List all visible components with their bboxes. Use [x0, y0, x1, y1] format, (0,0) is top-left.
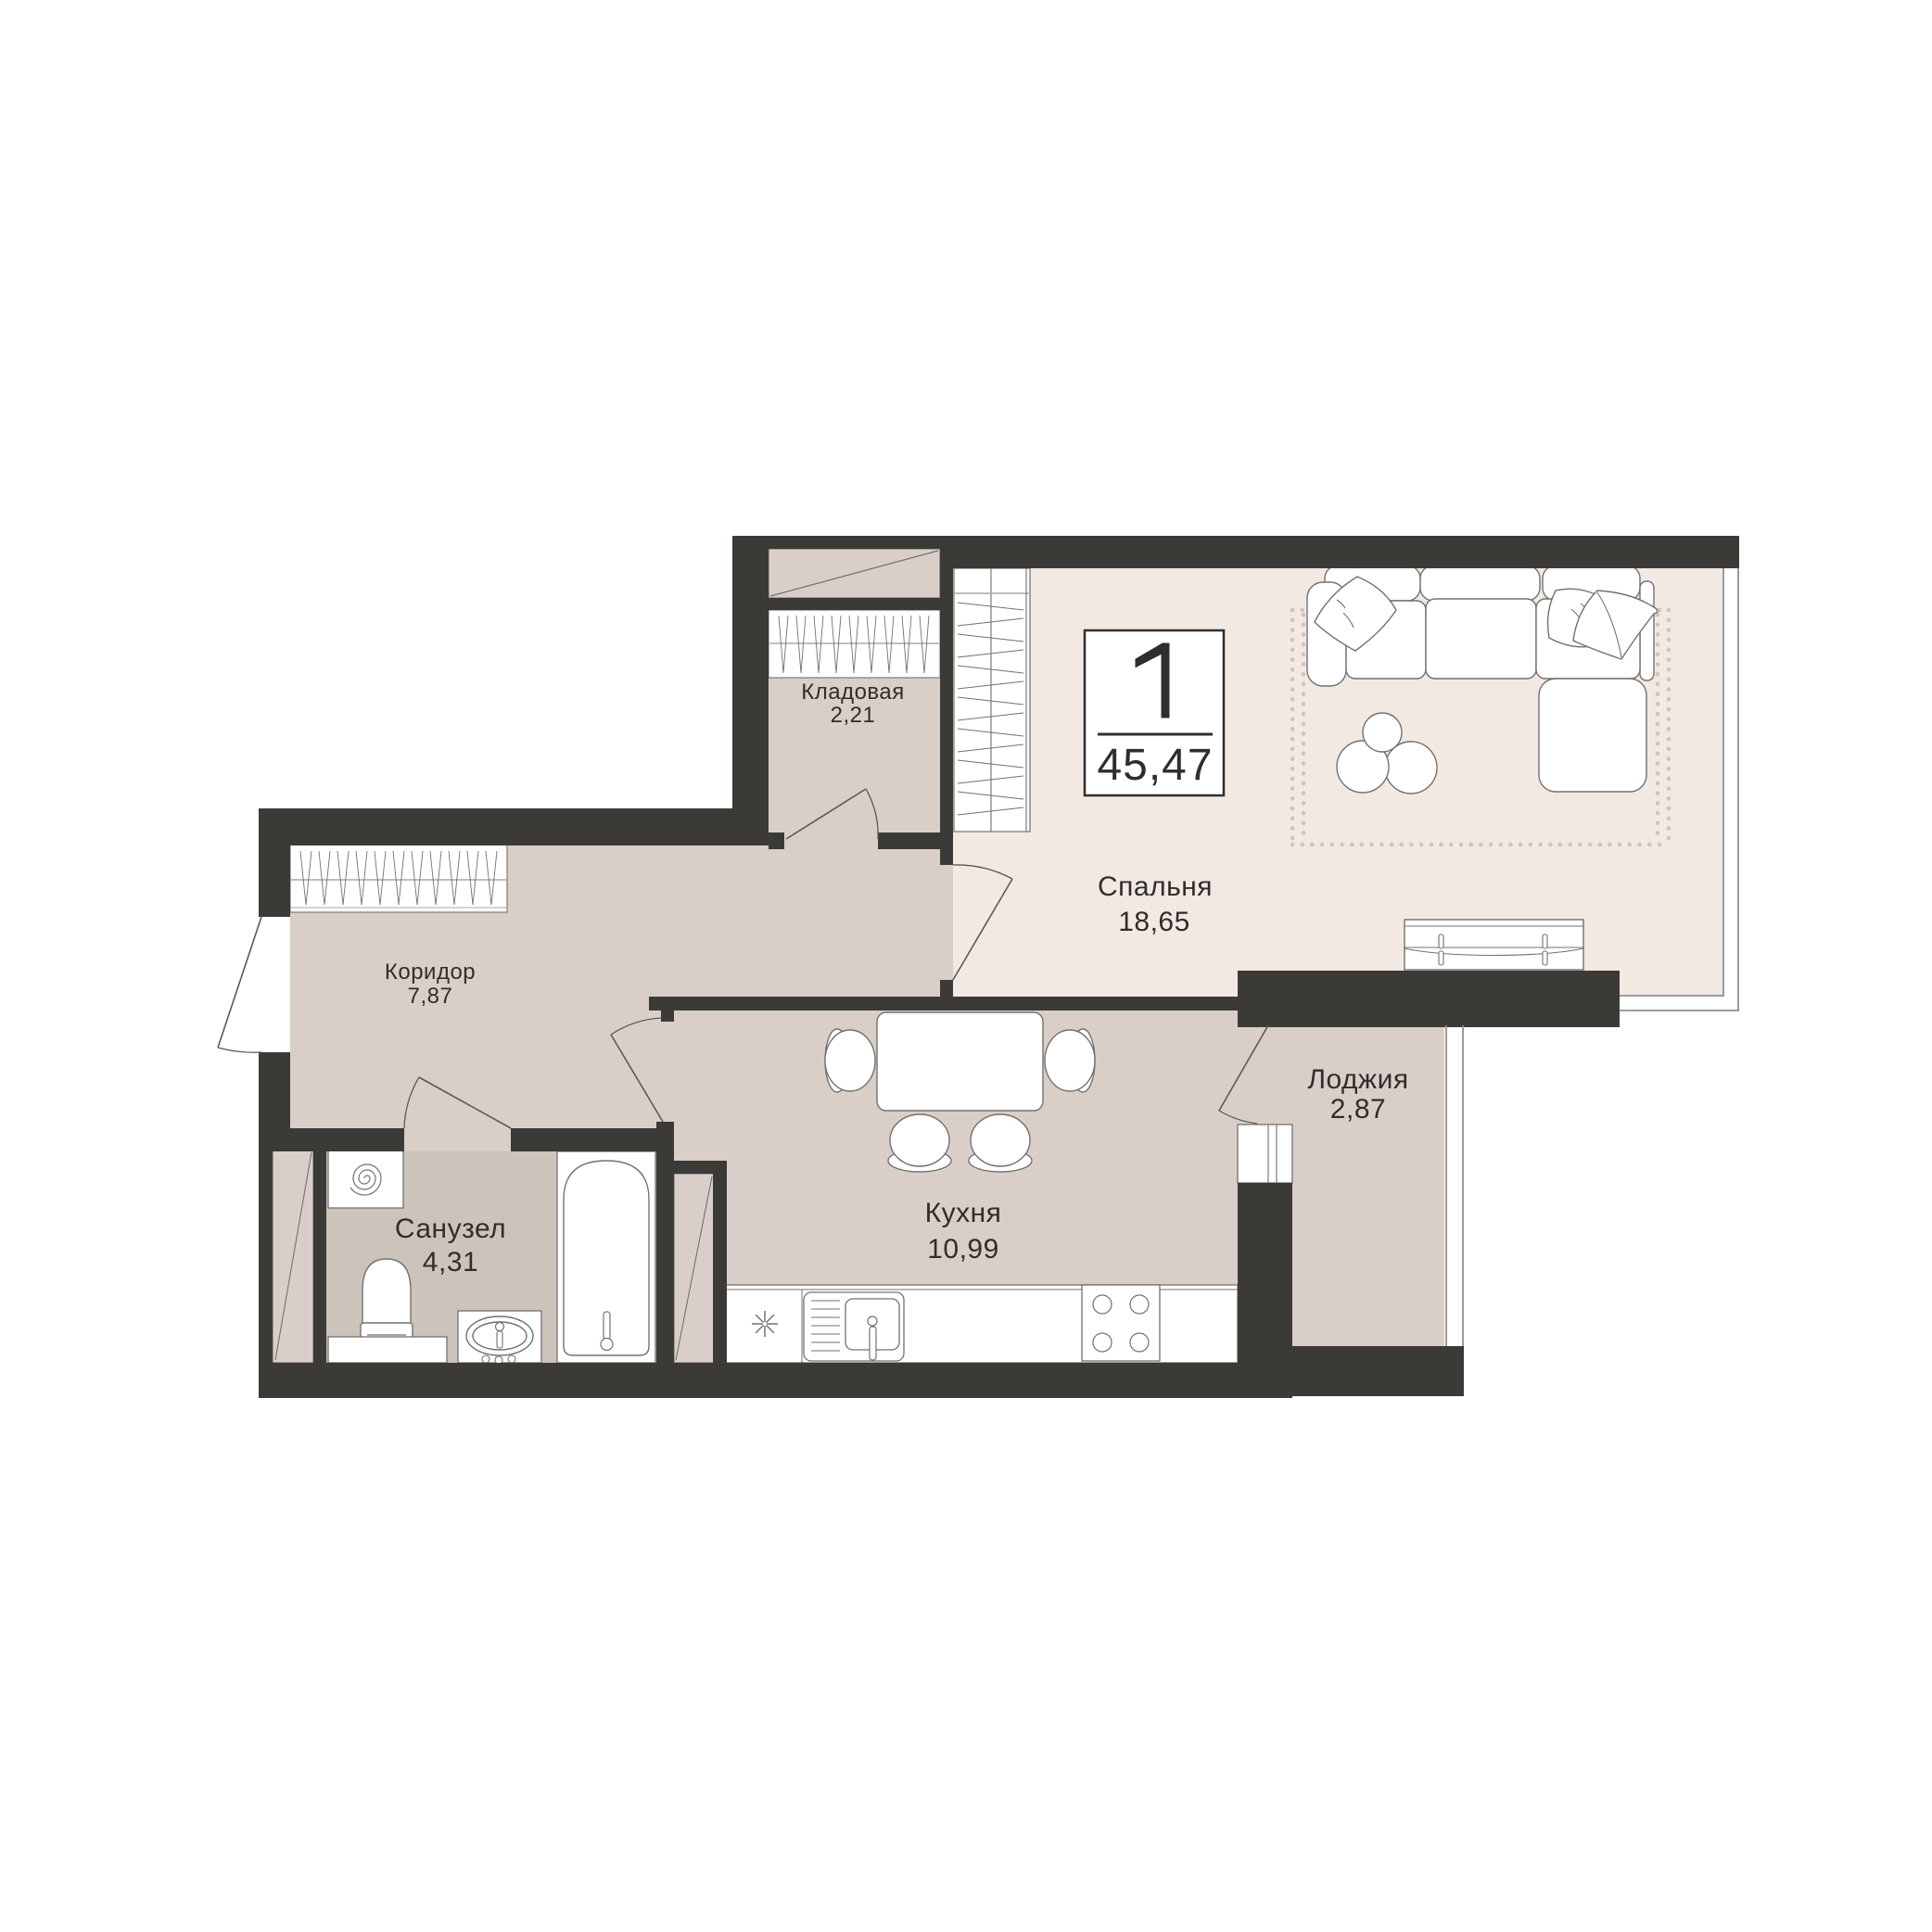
svg-text:Коридор: Коридор	[385, 960, 476, 985]
svg-text:Кухня: Кухня	[925, 1198, 1002, 1228]
svg-text:2,21: 2,21	[831, 703, 876, 728]
svg-text:18,65: 18,65	[1118, 907, 1190, 937]
svg-text:Кладовая: Кладовая	[801, 680, 905, 705]
svg-text:7,87: 7,87	[408, 984, 453, 1009]
svg-text:45,47: 45,47	[1097, 741, 1213, 790]
svg-text:Лоджия: Лоджия	[1307, 1064, 1408, 1095]
svg-text:Спальня: Спальня	[1098, 871, 1213, 902]
svg-text:2,87: 2,87	[1330, 1094, 1386, 1125]
svg-text:10,99: 10,99	[927, 1234, 999, 1265]
svg-text:Санузел: Санузел	[395, 1214, 506, 1244]
svg-text:4,31: 4,31	[423, 1247, 478, 1277]
